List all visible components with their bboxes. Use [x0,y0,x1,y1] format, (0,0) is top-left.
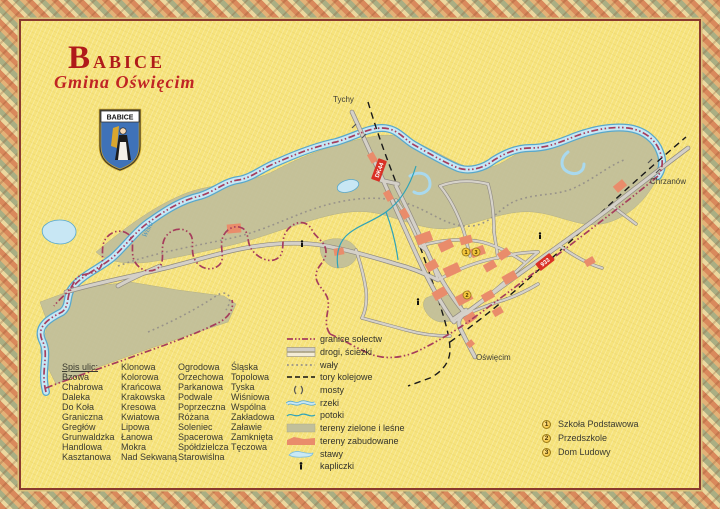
stream-icon [286,410,320,420]
street-name: Lipowa [121,422,181,432]
legend-label: wały [320,360,338,370]
street-name: Bzowa [62,372,122,382]
street-column-4: ŚląskaTopolowaTyskaWiśniowaWspólnaZakład… [231,362,291,452]
legend-label: kapliczki [320,461,354,471]
street-name: Spółdzielcza [178,442,238,452]
street-name: Graniczna [62,412,122,422]
legend-row: tereny zielone i leśne [286,422,405,435]
green-area-icon [286,423,320,433]
street-name: Mokra [121,442,181,452]
poi-label: Dom Ludowy [558,447,611,457]
street-name: Handlowa [62,442,122,452]
map-poster: DK44 933 1 3 2 Tychy Chrzanów Oświęcim W… [0,0,720,509]
page-subtitle: Gmina Oświęcim [54,72,196,93]
label-oswiecim: Oświęcim [476,353,511,362]
poi-legend-row: 2 Przedszkole [542,431,639,445]
street-name: Gregłów [62,422,122,432]
street-name: Zakładowa [231,412,291,422]
street-name: Spacerowa [178,432,238,442]
legend-row: tereny zabudowane [286,435,405,448]
legend-row: granice sołectw [286,333,405,346]
street-name: Krakowska [121,392,181,402]
poi-label: Szkoła Podstawowa [558,419,639,429]
pond-icon [286,449,320,459]
legend-row: mosty [286,384,405,397]
legend-row: stawy [286,447,405,460]
legend-label: granice sołectw [320,334,382,344]
street-name: Podwale [178,392,238,402]
label-chrzanow: Chrzanów [650,177,686,186]
street-name: Wiśniowa [231,392,291,402]
poi-marker-dom-ludowy: 3 [472,248,480,256]
street-name: Kasztanowa [62,452,122,462]
legend-row: wały [286,358,405,371]
poi-marker-school: 1 [462,248,470,256]
street-name: Do Koła [62,402,122,412]
street-name: Łanowa [121,432,181,442]
legend-row: tory kolejowe [286,371,405,384]
legend-row: kapliczki [286,460,405,473]
street-name: Klonowa [121,362,181,372]
poi-number-badge: 1 [542,420,551,429]
poi-label: Przedszkole [558,433,607,443]
street-name: Krańcowa [121,382,181,392]
street-name: Wspólna [231,402,291,412]
street-column-1: BzowaChabrowaDalekaDo KołaGranicznaGregł… [62,372,122,462]
shrine-icon [286,461,320,471]
street-name: Tęczowa [231,442,291,452]
poi-legend: 1 Szkoła Podstawowa 2 Przedszkole 3 Dom … [542,417,639,459]
map-legend: granice sołectw drogi, ścieżki wały tory… [286,333,405,473]
street-name: Starowiślna [178,452,238,462]
street-name: Grunwaldzka [62,432,122,442]
street-name: Różana [178,412,238,422]
poi-marker-przedszkole: 2 [463,291,471,299]
legend-row: potoki [286,409,405,422]
legend-label: rzeki [320,398,339,408]
street-column-3: OgrodowaOrzechowaParkanowaPodwalePoprzec… [178,362,238,462]
boundary-line-icon [286,334,320,344]
legend-row: rzeki [286,396,405,409]
street-column-2: KlonowaKolorowaKrańcowaKrakowskaKresowaK… [121,362,181,462]
street-name: Poprzeczna [178,402,238,412]
poi-number-badge: 3 [542,448,551,457]
street-name: Załawie [231,422,291,432]
label-tychy: Tychy [333,95,354,104]
legend-row: drogi, ścieżki [286,346,405,359]
legend-label: mosty [320,385,344,395]
street-name: Kolorowa [121,372,181,382]
crest-figure-head [120,128,126,134]
street-name: Orzechowa [178,372,238,382]
street-name: Zamknięta [231,432,291,442]
street-name: Nad Sekwaną [121,452,181,462]
roads-icon [286,347,320,357]
svg-text:3: 3 [474,250,477,256]
street-name: Ogrodowa [178,362,238,372]
river-icon [286,398,320,408]
legend-label: potoki [320,410,344,420]
poi-number-badge: 2 [542,434,551,443]
legend-label: drogi, ścieżki [320,347,372,357]
legend-label: stawy [320,449,343,459]
crest-banner: BABICE [107,115,134,122]
railway-line-icon [286,372,320,382]
street-name: Parkanowa [178,382,238,392]
poi-legend-row: 1 Szkoła Podstawowa [542,417,639,431]
street-name: Tyska [231,382,291,392]
street-name: Daleka [62,392,122,402]
street-name: Chabrowa [62,382,122,392]
street-index-heading: Spis ulic: [62,362,122,372]
bridge-icon [286,385,320,395]
built-area-icon [286,436,320,446]
embankment-line-icon [286,360,320,370]
coat-of-arms: BABICE [98,108,142,172]
street-name: Kwiatowa [121,412,181,422]
legend-label: tereny zabudowane [320,436,399,446]
poi-legend-row: 3 Dom Ludowy [542,445,639,459]
svg-text:2: 2 [465,293,468,299]
legend-label: tereny zielone i leśne [320,423,405,433]
street-name: Śląska [231,362,291,372]
street-name: Kresowa [121,402,181,412]
street-name: Topolowa [231,372,291,382]
street-name: Soleniec [178,422,238,432]
legend-label: tory kolejowe [320,372,373,382]
svg-text:1: 1 [464,250,467,256]
